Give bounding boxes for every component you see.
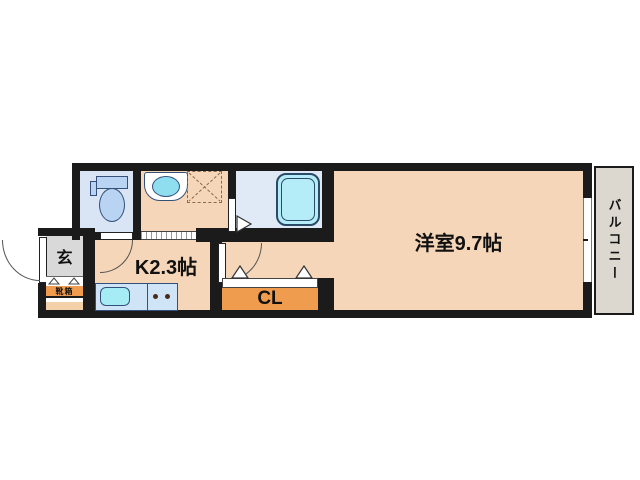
closet-label: CL: [257, 288, 282, 310]
balcony-label: バルコニー: [596, 168, 632, 313]
bathroom-door-direction-icon: [236, 215, 252, 233]
entrance-label: 玄: [56, 244, 72, 268]
wall-left-lower: [38, 283, 46, 312]
kitchen-label: K2.3帖: [135, 251, 197, 280]
kitchen-sink-icon: [100, 287, 130, 306]
entrance-lower-cabinet: [46, 302, 83, 310]
entrance-door-arc: [2, 240, 40, 281]
stove-burner-right-icon: [165, 294, 170, 299]
main-room-label-wrap: 洋室9.7帖: [334, 226, 583, 256]
toilet-bowl-icon: [99, 188, 125, 222]
stove-burner-left-icon: [153, 294, 158, 299]
balcony: バルコニー: [594, 166, 634, 315]
closet-slide-marker-right-icon: [295, 265, 313, 279]
entrance-label-wrap: 玄: [46, 240, 83, 272]
closet-slide-marker-left-icon: [231, 265, 249, 279]
toilet-door-leaf: [100, 232, 133, 240]
kitchen-label-wrap: K2.3帖: [110, 250, 222, 280]
wall-entrance-kitchen: [83, 236, 95, 311]
washing-machine-cross-icon: [188, 172, 221, 202]
washroom-accordion-door: [141, 231, 196, 240]
wall-top: [72, 163, 592, 171]
wall-right-lower: [583, 282, 592, 312]
kitchen-counter-divider: [147, 283, 148, 311]
wall-toilet-washroom: [133, 171, 141, 240]
floorplan-canvas: バルコニー 靴箱: [0, 0, 640, 480]
wall-entrance-top: [38, 228, 95, 236]
shoe-box-label: 靴箱: [56, 286, 74, 297]
window-center-tick: [583, 239, 588, 241]
toilet-handle-icon: [90, 181, 97, 196]
main-room-label: 洋室9.7帖: [415, 227, 503, 256]
washing-machine-area: [187, 171, 222, 203]
wall-closet-right: [318, 278, 334, 311]
entrance-step-marker-icons: [48, 277, 82, 285]
bathroom-door-leaf: [228, 198, 236, 232]
closet: CL: [222, 288, 318, 310]
washbasin-bowl-icon: [152, 176, 180, 197]
wall-washroom-bath: [228, 171, 236, 198]
bathtub-inner-line: [281, 178, 315, 221]
wall-right-upper: [583, 171, 592, 198]
closet-sliding-door: [222, 278, 318, 288]
wall-bath-right: [322, 171, 334, 242]
bathtub-icon: [276, 173, 320, 226]
shoe-box: 靴箱: [46, 286, 83, 298]
wall-bottom: [38, 310, 592, 318]
